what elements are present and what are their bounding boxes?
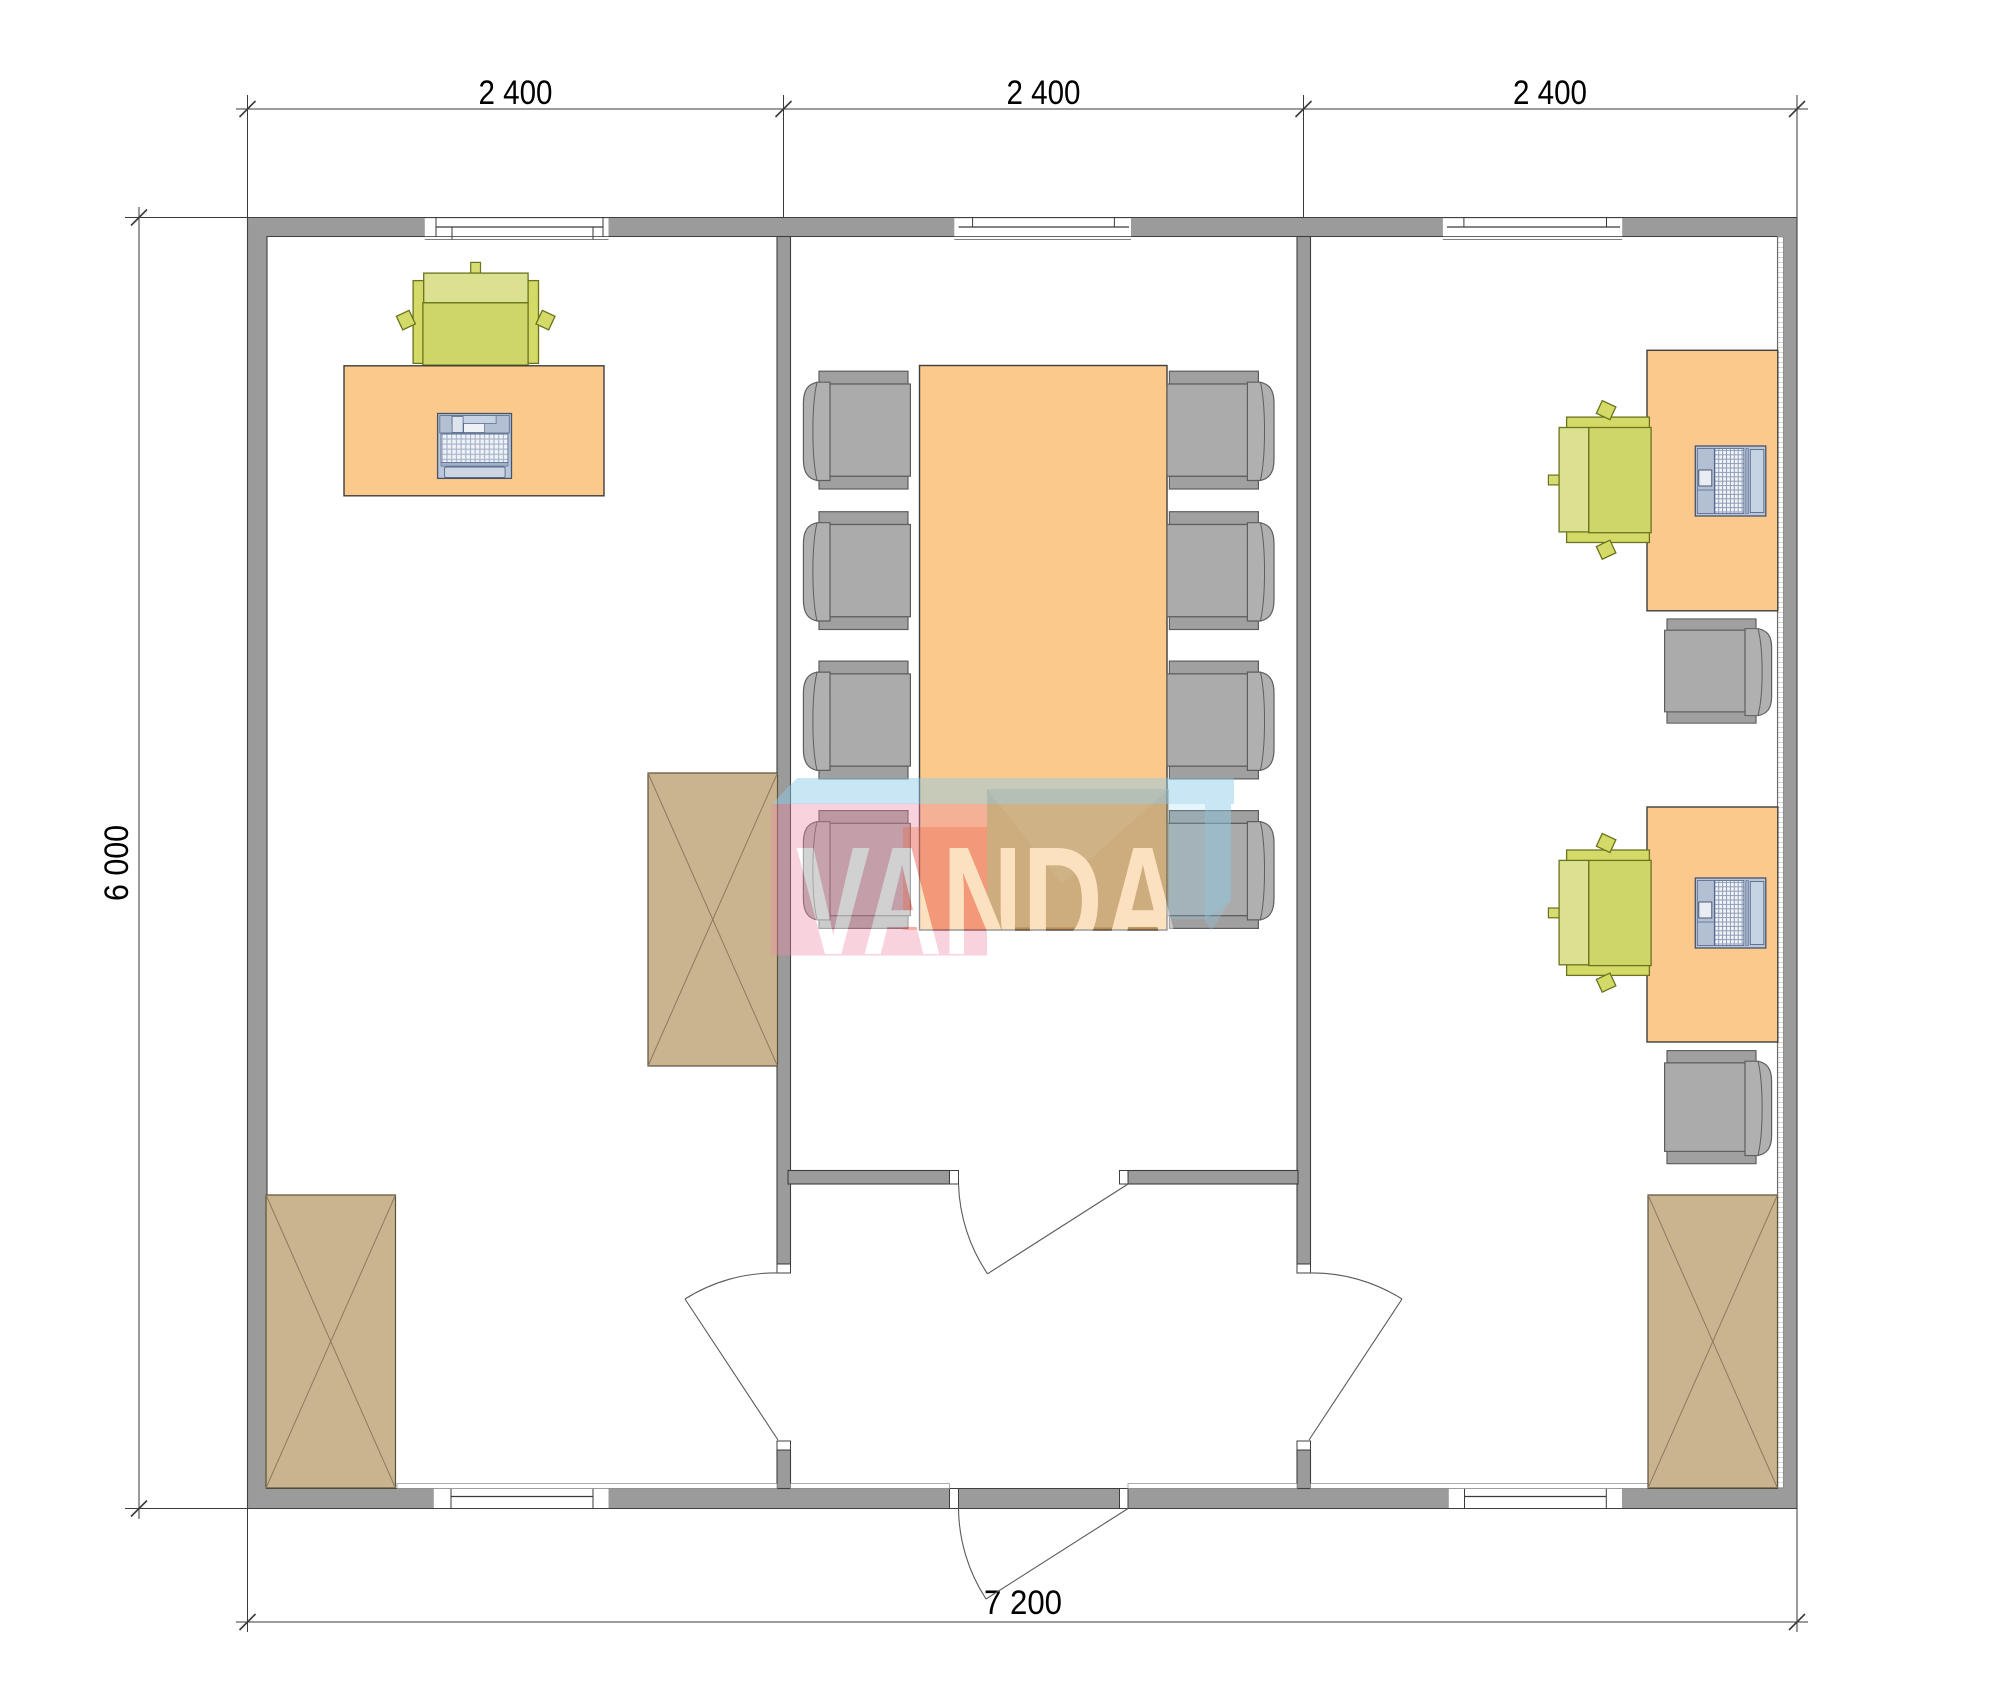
svg-text:2 400: 2 400 (1513, 74, 1587, 112)
svg-text:7 200: 7 200 (984, 1584, 1062, 1622)
svg-text:6 000: 6 000 (98, 825, 136, 901)
svg-text:2 400: 2 400 (1007, 74, 1081, 112)
svg-text:VANDA: VANDA (796, 815, 1183, 987)
svg-text:2 400: 2 400 (479, 74, 553, 112)
